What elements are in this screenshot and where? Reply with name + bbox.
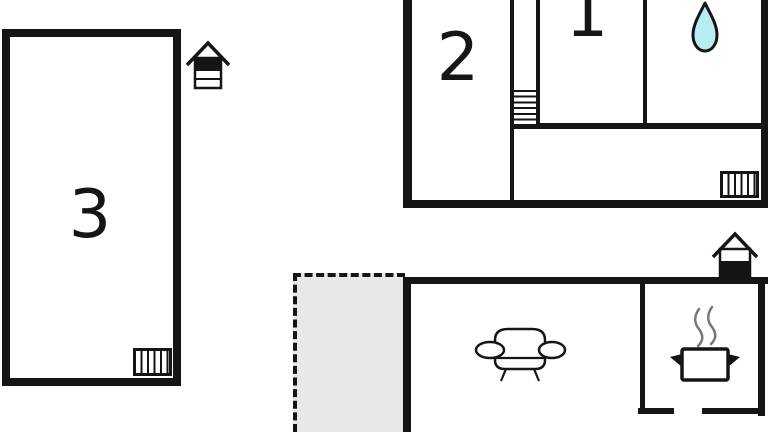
room-3-label: 3 [60,181,120,248]
wall-kitchen-bottom-right [702,408,765,414]
room-2-label: 2 [428,24,488,91]
floor-indicator-upper-icon [186,40,230,90]
wall-stairs-divider [536,0,540,127]
wall-ground-left [403,277,411,432]
wall-upper-left [403,0,412,208]
room-1-label: 1 [557,0,617,47]
floor-plan-canvas: 3 2 1 [0,0,768,432]
wall-room1-bath-divider [643,0,647,127]
terrace-area [293,273,405,432]
radiator-icon [133,348,172,376]
wall-upper-bottom [403,200,768,208]
wall-ground-right [758,277,765,416]
wall-kitchen-bottom-left [638,408,674,414]
staircase-icon [514,90,536,124]
floor-indicator-ground-icon [710,228,760,278]
water-drop-icon [691,1,719,53]
sofa-icon [470,322,570,384]
wall-kitchen-divider [640,281,645,411]
cooking-pot-icon [660,300,740,385]
wall-upper-right [761,0,768,208]
wall-ground-top [403,277,768,284]
radiator-icon [720,171,759,198]
wall-corridor-horizontal [512,123,762,129]
